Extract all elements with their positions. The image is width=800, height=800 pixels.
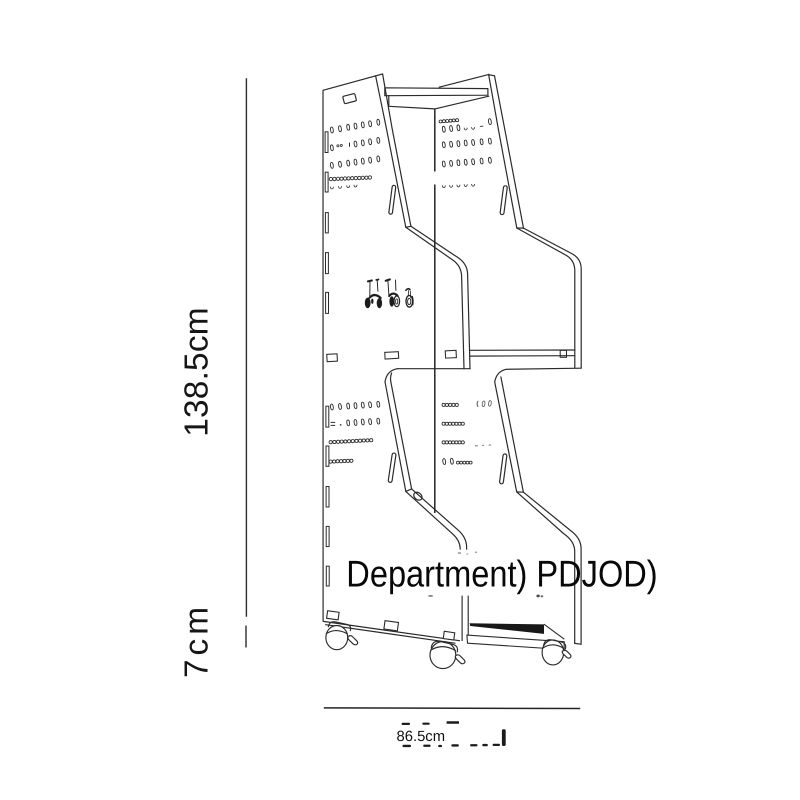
- svg-text:138.5cm: 138.5cm: [179, 307, 216, 436]
- svg-text:Department) PDJOD): Department) PDJOD): [346, 552, 657, 594]
- svg-text:86.5cm: 86.5cm: [397, 729, 446, 745]
- svg-text:7cm: 7cm: [179, 603, 216, 678]
